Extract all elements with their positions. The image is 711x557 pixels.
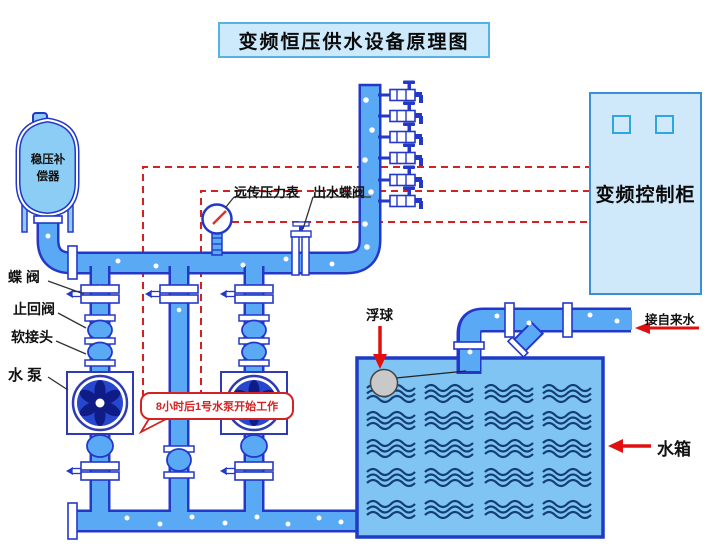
water-pump-label: 水 泵	[8, 364, 42, 385]
suction-flange	[68, 503, 77, 539]
tap-water-label: 接自来水	[645, 309, 695, 328]
tap-valve-icon	[378, 144, 423, 167]
float-ball-icon	[371, 370, 398, 397]
tank-arrow	[608, 439, 623, 453]
tap-valve-icon	[378, 187, 423, 210]
water-tank-label: 水箱	[657, 435, 691, 460]
pressure-gauge-label: 远传压力表	[234, 182, 299, 201]
tap-valve-icon	[378, 123, 423, 146]
pump-column-3	[220, 285, 287, 480]
tap-valve-icon	[378, 102, 423, 125]
butterfly-valve-label: 蝶 阀	[8, 267, 40, 287]
check-valve-label: 止回阀	[13, 299, 55, 319]
diagram-title: 变频恒压供水设备原理图	[218, 22, 490, 58]
float-ball-label: 浮球	[366, 304, 393, 324]
pump-column-1	[66, 285, 133, 480]
riser-tap-valves	[378, 81, 423, 210]
pump-start-callout: 8小时后1号水泵开始工作	[140, 392, 294, 420]
control-cabinet: 变频控制柜	[589, 92, 702, 295]
pump-1-icon	[67, 372, 133, 434]
diagram-canvas: 变频恒压供水设备原理图 稳压补 偿器 蝶 阀 止回阀 软接头 水 泵 远传压力表…	[0, 0, 711, 557]
cabinet-indicator-square	[612, 115, 631, 134]
cabinet-indicator-square	[655, 115, 674, 134]
compensator-flange	[34, 216, 62, 223]
tap-valve-icon	[378, 166, 423, 189]
control-cabinet-label: 变频控制柜	[591, 180, 700, 207]
header-flange	[68, 246, 77, 279]
outlet-valve-label: 出水蝶阀	[313, 182, 365, 201]
pressure-gauge-icon	[203, 205, 232, 256]
tap-valve-icon	[378, 81, 423, 104]
flexible-joint-label: 软接头	[11, 327, 53, 347]
compensator-label: 稳压补 偿器	[18, 152, 78, 187]
